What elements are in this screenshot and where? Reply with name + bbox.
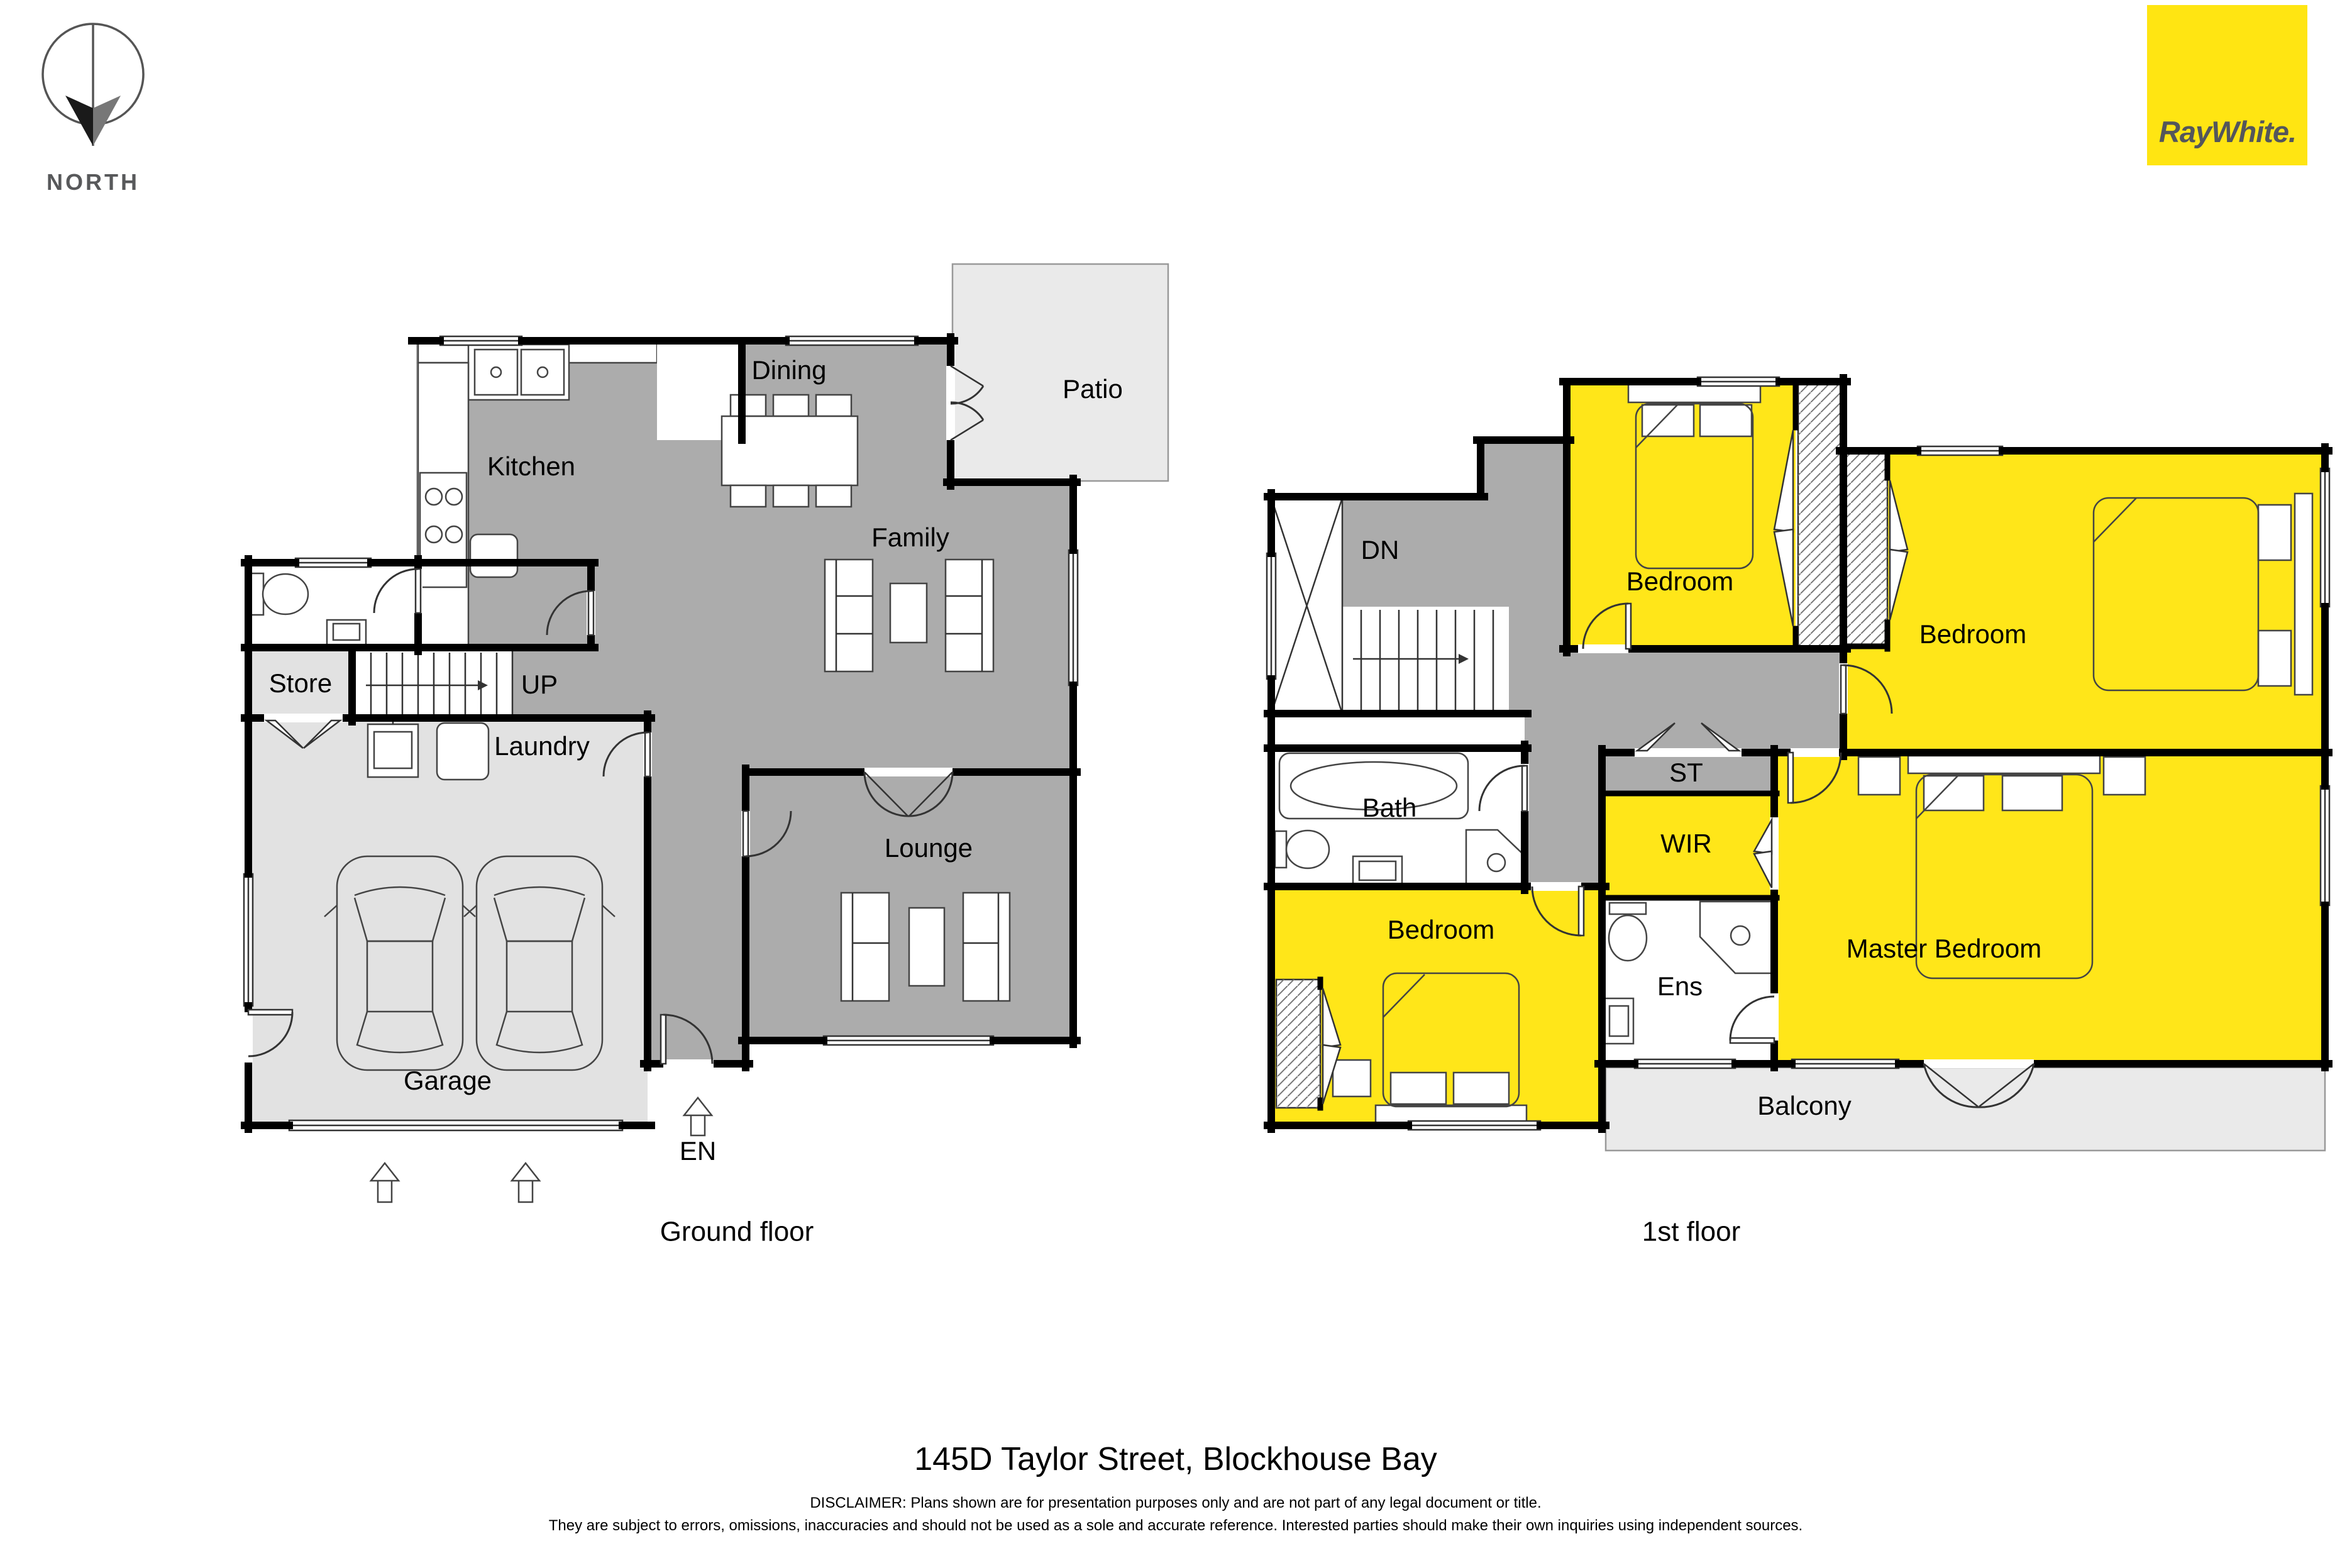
label-up: UP — [521, 670, 558, 699]
label-master-bedroom: Master Bedroom — [1847, 934, 2041, 963]
garage-entry-arrow-icon — [371, 1163, 539, 1202]
chair-icon — [731, 395, 766, 416]
label-dn: DN — [1361, 535, 1400, 565]
label-ens: Ens — [1657, 971, 1703, 1001]
sofa-icon — [841, 893, 889, 1001]
label-family: Family — [871, 522, 949, 552]
floor-caption-ground: Ground floor — [660, 1217, 814, 1247]
raywhite-logo: RayWhite. — [2147, 5, 2307, 165]
label-dining: Dining — [751, 355, 826, 385]
label-bath: Bath — [1362, 793, 1416, 822]
north-arrow-icon-right — [93, 96, 121, 146]
logo-brand-text: RayWhite. — [2159, 115, 2296, 148]
lounge-furniture — [841, 893, 1010, 1001]
label-laundry: Laundry — [494, 731, 590, 761]
bedside-table-icon — [1333, 1060, 1371, 1096]
sofa-icon — [946, 560, 993, 671]
floorplan-canvas: NORTH RayWhite. — [0, 0, 2352, 1568]
bedside-table-icon — [1858, 757, 1900, 795]
chair-icon — [773, 485, 809, 507]
label-store: Store — [269, 668, 332, 698]
label-kitchen: Kitchen — [487, 451, 575, 481]
label-bedroom-left: Bedroom — [1388, 915, 1494, 944]
footer: 145D Taylor Street, Blockhouse Bay DISCL… — [549, 1441, 1803, 1534]
label-lounge: Lounge — [885, 833, 973, 863]
label-patio: Patio — [1063, 374, 1123, 404]
north-label: NORTH — [47, 169, 140, 195]
disclaimer-line2: They are subject to errors, omissions, i… — [549, 1517, 1803, 1534]
label-wir: WIR — [1660, 829, 1712, 858]
room-bedroom-right — [1843, 451, 2325, 753]
chair-icon — [773, 395, 809, 416]
label-bedroom-top: Bedroom — [1626, 566, 1733, 596]
first-floor-plan: DN Bedroom Bedroom Bath ST WIR Ens Bedro… — [1267, 377, 2329, 1247]
ground-floor-plan: Kitchen Dining Patio Family Lounge Store… — [244, 264, 1168, 1247]
entry-arrow-icon — [684, 1098, 712, 1135]
coffee-table-icon — [909, 908, 944, 986]
address: 145D Taylor Street, Blockhouse Bay — [914, 1441, 1437, 1477]
patio — [952, 264, 1168, 481]
toilet-icon — [1609, 903, 1646, 914]
label-garage: Garage — [404, 1066, 492, 1095]
washer-icon — [437, 723, 489, 780]
sofa-icon — [825, 560, 873, 671]
chair-icon — [816, 395, 851, 416]
floorplan-page: NORTH RayWhite. — [0, 0, 2352, 1568]
label-en: EN — [680, 1136, 716, 1166]
balcony — [1606, 1068, 2325, 1151]
door-leaf — [416, 569, 421, 613]
label-balcony: Balcony — [1757, 1091, 1851, 1120]
toilet-icon — [1275, 831, 1286, 868]
north-arrow-icon — [65, 96, 93, 146]
sofa-icon — [963, 893, 1010, 1001]
kitchen-island-icon — [470, 534, 517, 577]
stairs-down-run — [1342, 607, 1509, 714]
disclaimer-line1: DISCLAIMER: Plans shown are for presenta… — [810, 1494, 1541, 1511]
chair-icon — [816, 485, 851, 507]
label-bedroom-right: Bedroom — [1919, 619, 2026, 649]
north-indicator: NORTH — [43, 24, 143, 195]
toilet-icon — [251, 573, 263, 615]
floor-caption-first: 1st floor — [1642, 1217, 1741, 1247]
coffee-table-icon — [890, 583, 927, 643]
label-st: ST — [1669, 758, 1703, 787]
bedside-table-icon — [2104, 757, 2145, 795]
chair-icon — [731, 485, 766, 507]
